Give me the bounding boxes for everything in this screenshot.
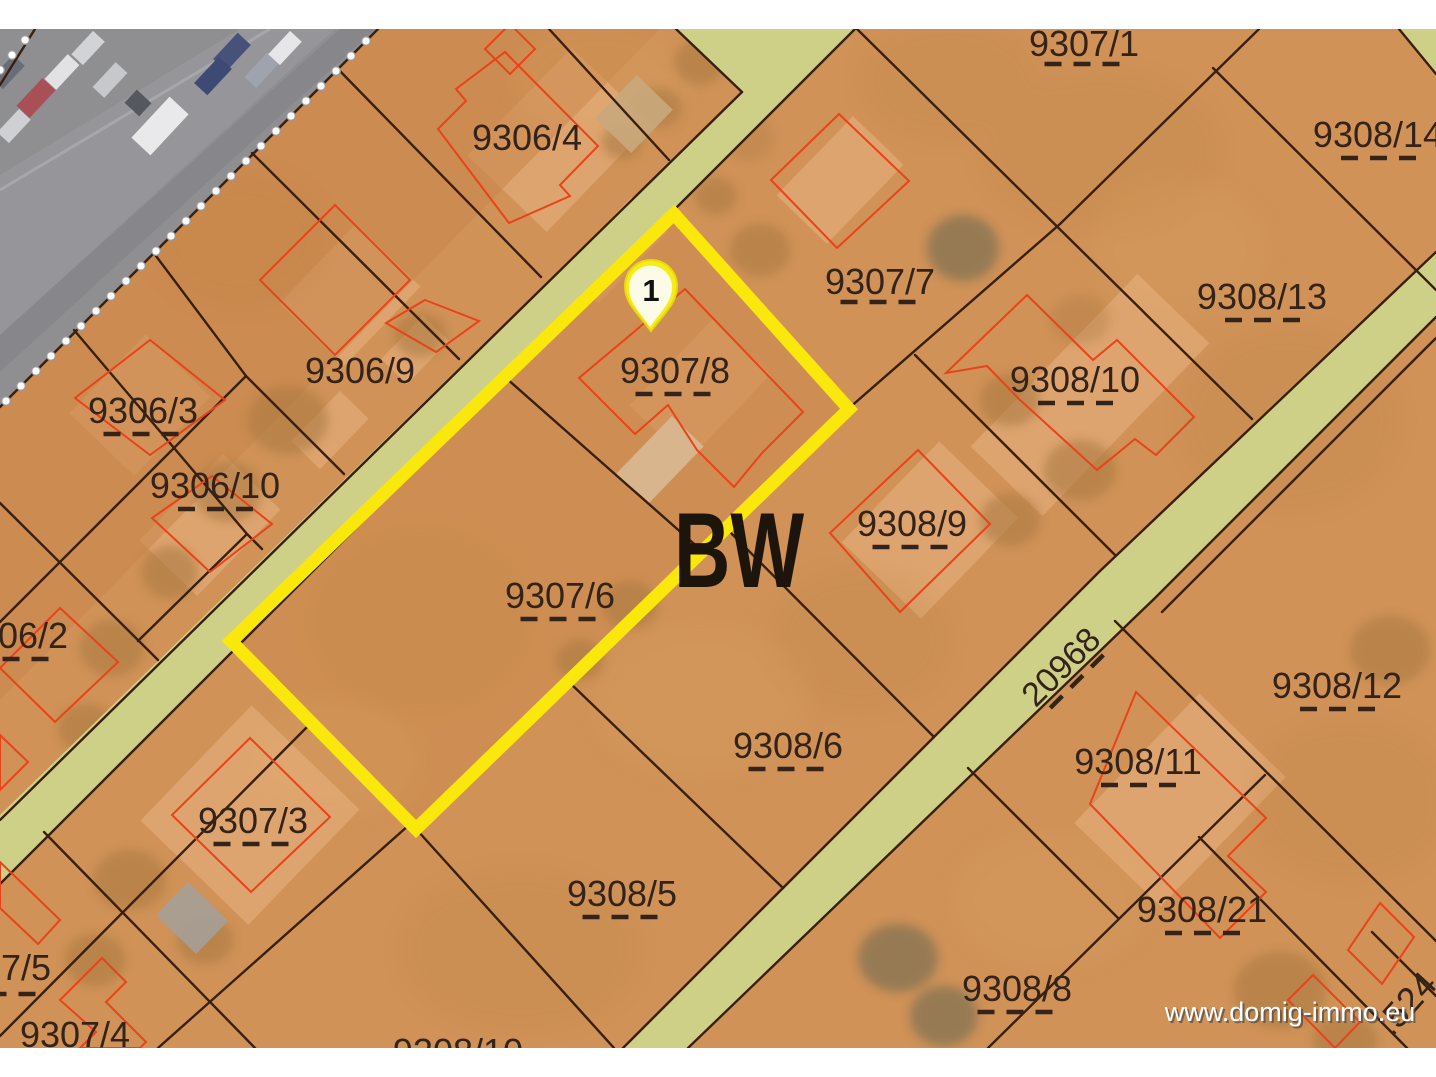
svg-text:9306/4: 9306/4: [472, 117, 582, 158]
svg-text:9308/12: 9308/12: [1272, 665, 1402, 706]
svg-text:1: 1: [642, 273, 659, 308]
svg-text:9307/8: 9307/8: [620, 350, 730, 391]
svg-text:9308/9: 9308/9: [857, 503, 967, 544]
svg-text:9308/8: 9308/8: [962, 968, 1072, 1009]
svg-text:9308/14: 9308/14: [1313, 114, 1436, 155]
svg-text:9307/5: 9307/5: [0, 947, 51, 988]
svg-text:9307/6: 9307/6: [505, 575, 615, 616]
svg-text:9308/13: 9308/13: [1197, 276, 1327, 317]
svg-text:9306/9: 9306/9: [305, 350, 415, 391]
svg-text:www.domig-immo.eu: www.domig-immo.eu: [1164, 997, 1416, 1027]
svg-text:9307/3: 9307/3: [198, 800, 308, 841]
svg-text:BW: BW: [674, 490, 805, 610]
svg-text:9306/10: 9306/10: [150, 465, 280, 506]
svg-text:9307/1: 9307/1: [1029, 23, 1139, 64]
svg-text:9306/2: 9306/2: [0, 615, 68, 656]
svg-text:9308/6: 9308/6: [733, 725, 843, 766]
svg-text:9308/11: 9308/11: [1074, 741, 1201, 782]
svg-text:9308/21: 9308/21: [1137, 889, 1267, 930]
svg-text:9308/10: 9308/10: [1010, 359, 1140, 400]
svg-text:9308/5: 9308/5: [567, 873, 677, 914]
svg-text:9307/7: 9307/7: [825, 261, 935, 302]
svg-text:9306/3: 9306/3: [88, 390, 198, 431]
